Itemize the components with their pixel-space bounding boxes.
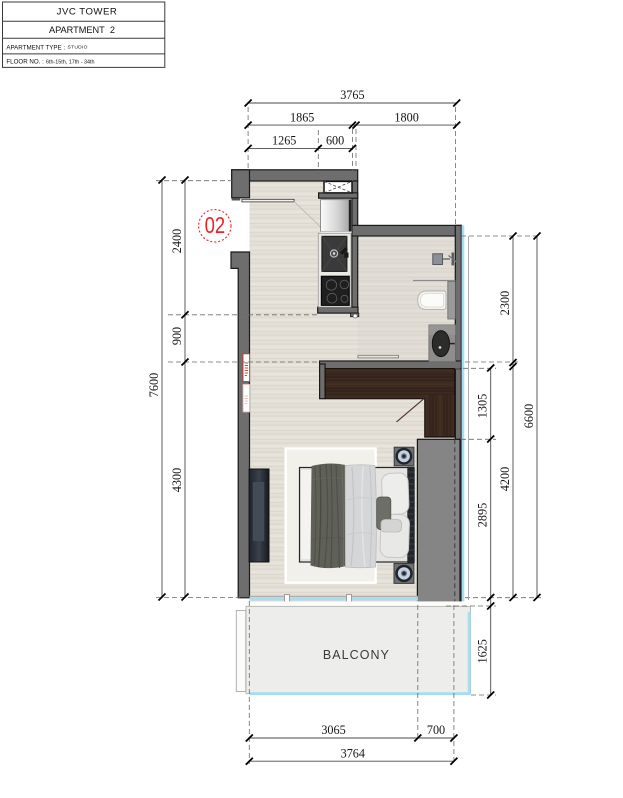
svg-text:7600: 7600 — [147, 373, 161, 397]
svg-text:3065: 3065 — [321, 723, 345, 737]
svg-text:STUDIO: STUDIO — [68, 45, 88, 51]
svg-text:2300: 2300 — [498, 291, 512, 315]
svg-text:JVC TOWER: JVC TOWER — [57, 7, 118, 18]
svg-text:3765: 3765 — [340, 88, 364, 102]
svg-text:FLOOR NO. :: FLOOR NO. : — [6, 58, 44, 65]
svg-text:2400: 2400 — [170, 229, 184, 253]
svg-text:900: 900 — [170, 327, 184, 345]
svg-text:700: 700 — [427, 723, 445, 737]
svg-text:02: 02 — [205, 212, 226, 238]
svg-text:APARTMENT 2: APARTMENT 2 — [49, 25, 115, 35]
svg-text:1265: 1265 — [272, 134, 296, 148]
svg-text:600: 600 — [326, 134, 344, 148]
svg-text:1865: 1865 — [290, 110, 314, 124]
svg-text:4300: 4300 — [170, 468, 184, 492]
svg-text:2895: 2895 — [476, 503, 490, 527]
svg-text:BALCONY: BALCONY — [323, 648, 390, 662]
svg-text:3764: 3764 — [341, 746, 365, 760]
svg-text:6th-15th, 17th - 34th: 6th-15th, 17th - 34th — [46, 59, 95, 65]
svg-text:1305: 1305 — [476, 394, 490, 418]
svg-text:APARTMENT TYPE :: APARTMENT TYPE : — [6, 45, 65, 52]
svg-text:1800: 1800 — [394, 110, 418, 124]
svg-text:6600: 6600 — [522, 404, 536, 428]
svg-text:1625: 1625 — [476, 639, 490, 663]
svg-text:4200: 4200 — [498, 467, 512, 491]
